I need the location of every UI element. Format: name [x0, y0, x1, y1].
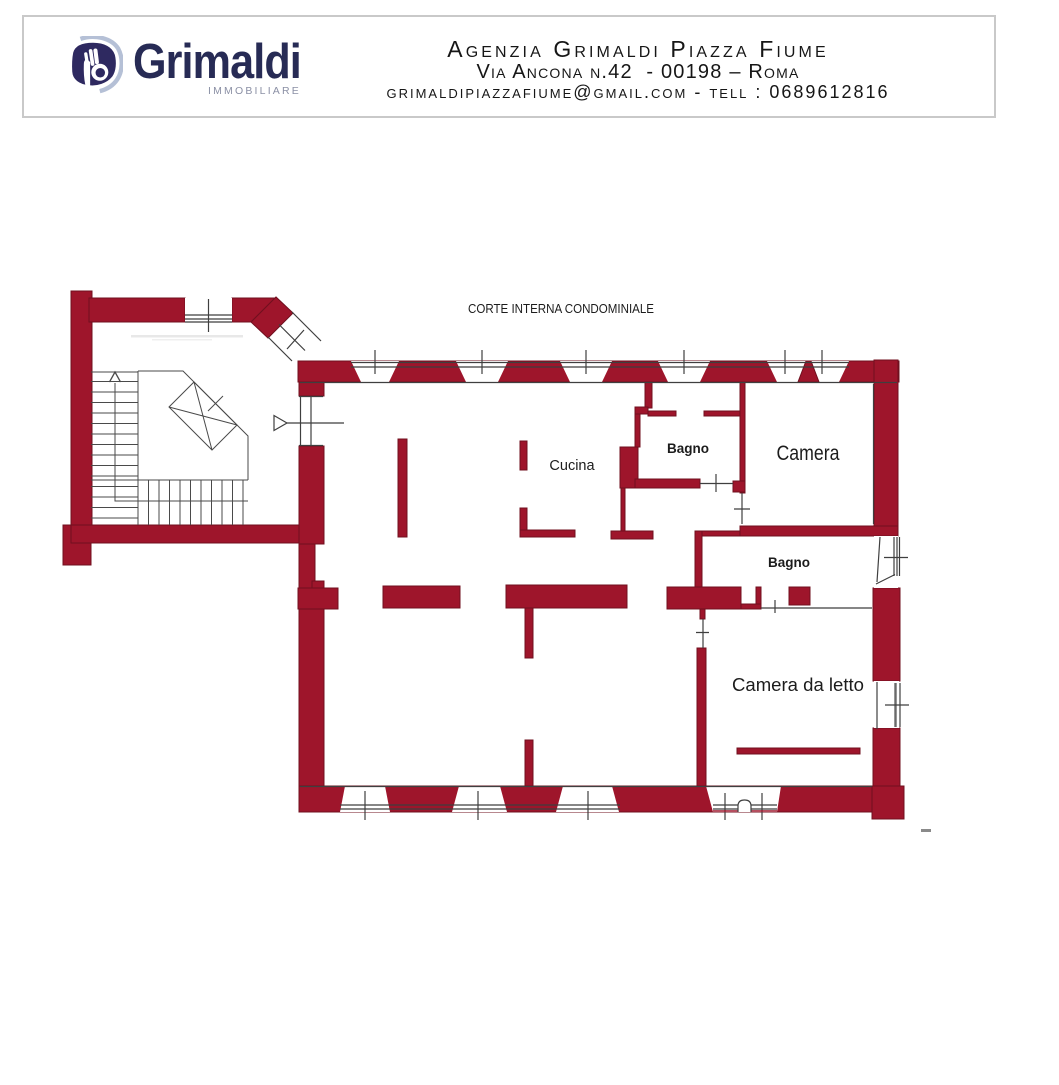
svg-text:Bagno: Bagno: [667, 441, 709, 456]
svg-text:CORTE INTERNA CONDOMINIALE: CORTE INTERNA CONDOMINIALE: [468, 301, 654, 316]
svg-text:Camera: Camera: [777, 441, 840, 465]
svg-text:Bagno: Bagno: [768, 555, 810, 570]
svg-text:Camera da letto: Camera da letto: [732, 674, 864, 695]
svg-text:Cucina: Cucina: [549, 458, 595, 474]
